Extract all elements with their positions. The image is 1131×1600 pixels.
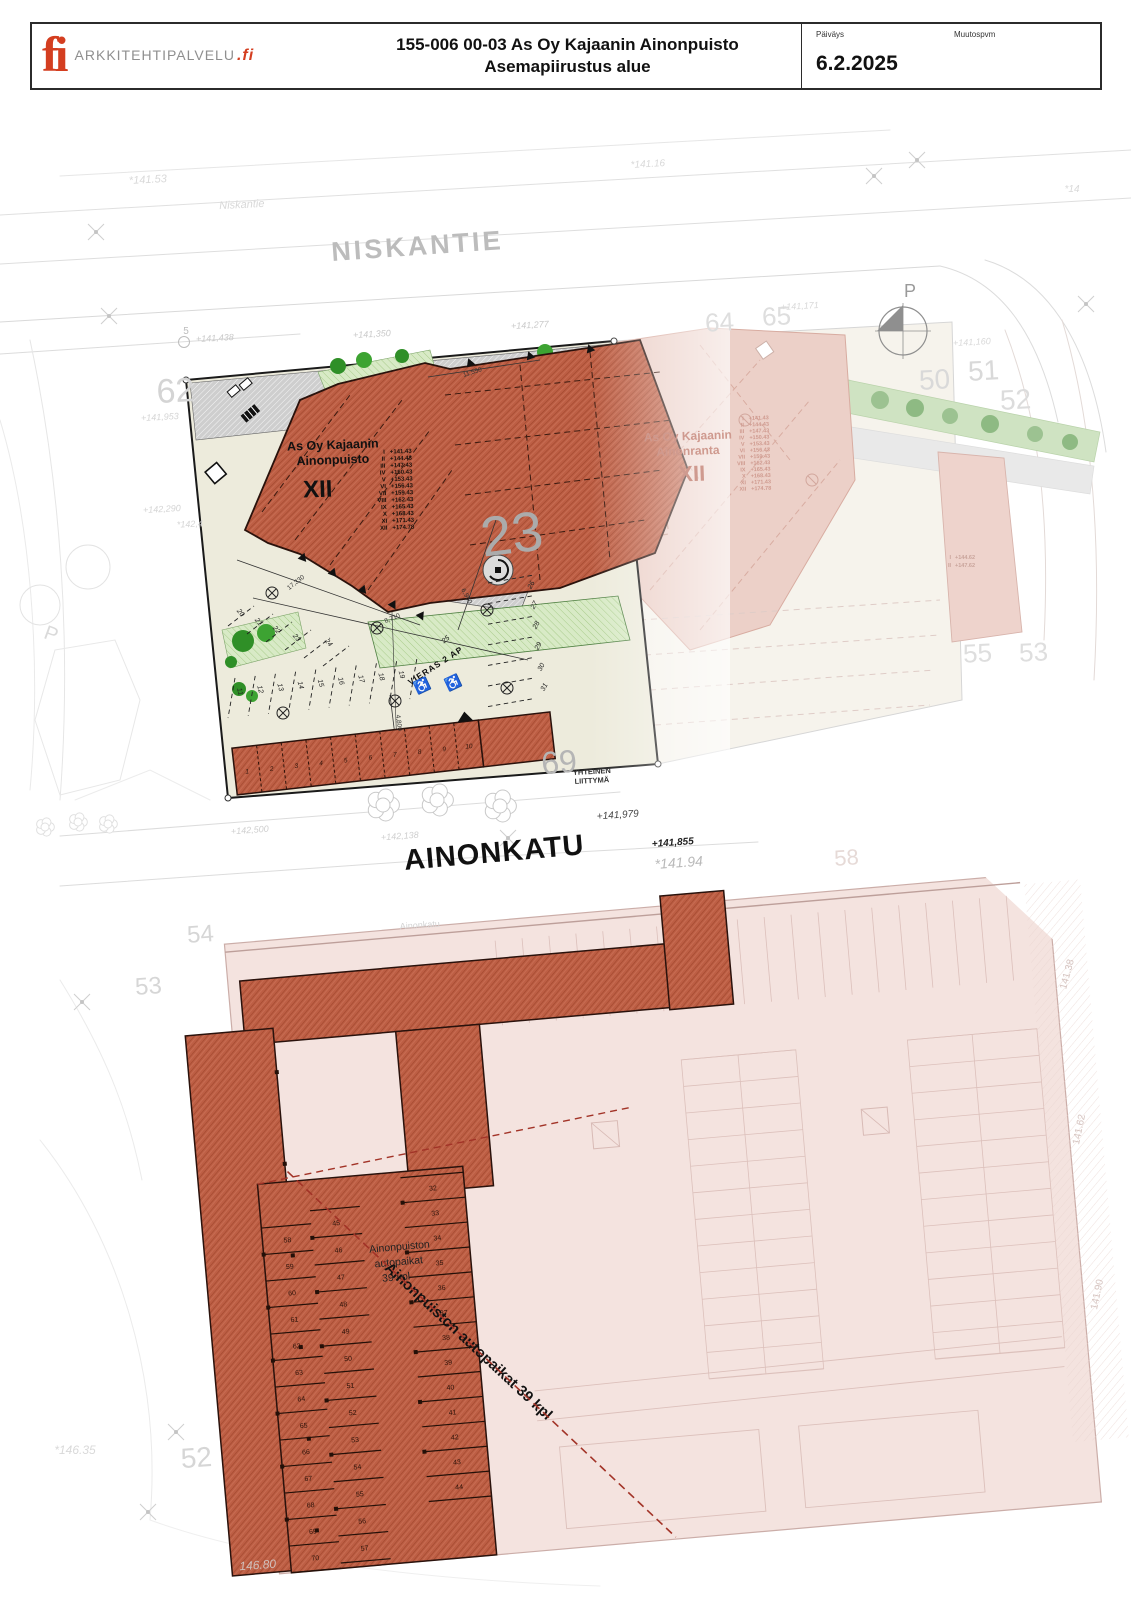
label-e1424: *142,4	[177, 518, 204, 529]
label-e141350: +141,350	[353, 328, 391, 340]
garage-stall-number: 35	[435, 1260, 443, 1268]
drawing-title: 155-006 00-03 As Oy Kajaanin Ainonpuisto…	[334, 24, 801, 88]
ainonranta-floor-table-level: V	[741, 442, 745, 448]
tree-flower-icon	[368, 789, 399, 821]
garage-stall-number: 67	[304, 1475, 312, 1483]
label-e142500: +142,500	[231, 824, 269, 837]
label-ainonkatu_major: AINONKATU	[403, 829, 586, 877]
garage-stall-number: 48	[339, 1301, 347, 1309]
label-storeys: XII	[303, 476, 333, 504]
company-name-suffix: .fi	[237, 47, 254, 64]
ainonpuisto-floor-table-elev: +162.43	[391, 497, 414, 504]
garage-stall-number: 38	[442, 1335, 450, 1343]
date-value: 6.2.2025	[816, 52, 898, 76]
label-b69: 69	[540, 743, 579, 782]
garage-stall-number: 63	[295, 1369, 303, 1377]
label-name_line2: Ainonranta	[656, 443, 720, 459]
ainonranta-floor-table-level: VIII	[737, 461, 746, 467]
ainonpuisto-floor-table-level: VI	[380, 484, 386, 490]
garage-stall-number: 36	[438, 1285, 446, 1293]
label-e14680: 146.80	[239, 1557, 277, 1574]
ainonranta-floor-table-elev: +174.78	[751, 486, 771, 493]
garage-stall-number: 52	[349, 1410, 357, 1418]
garage-stall-number: 51	[346, 1383, 354, 1391]
garage-stall-number: 68	[307, 1502, 315, 1510]
garage-stall-number: 32	[429, 1185, 437, 1193]
garage-stall-number: 54	[353, 1464, 361, 1472]
ainonranta-floor-table-level: III	[739, 429, 744, 435]
label-e14153: *141.53	[129, 173, 168, 187]
garage-stall-number: 60	[288, 1290, 296, 1298]
garage-stall-number: 43	[453, 1459, 461, 1467]
company-logo: fi ARKKITEHTIPALVELU.fi	[32, 24, 334, 88]
side-building-floor-table-level: II	[948, 563, 952, 569]
garage-stall-number: 42	[451, 1434, 459, 1442]
company-name-text: ARKKITEHTIPALVELU	[75, 47, 235, 63]
ainonpuisto-floor-table-level: XII	[380, 526, 388, 532]
ainonpuisto-floor-table-elev: +168.43	[392, 511, 415, 518]
ainonranta-floor-table: I+141.43II+144.43III+147.43IV+150.43V+15…	[735, 415, 771, 493]
garage-stall-number: 70	[311, 1555, 319, 1563]
label-niskantie_major: NISKANTIE	[330, 225, 504, 267]
label-e142290: +142,290	[143, 503, 181, 515]
label-yhteinen_line2: LIITTYMÄ	[574, 775, 610, 786]
ainonpuisto-floor-table-elev: +165.43	[392, 504, 415, 511]
label-b58f: 58	[833, 844, 859, 871]
ainonranta-floor-table-level: VI	[740, 448, 746, 454]
label-e14194: *141.94	[654, 853, 703, 872]
garage-stall-number: 44	[455, 1484, 463, 1492]
garage-stall-number: 65	[300, 1422, 308, 1430]
ainonpuisto-floor-table-level: XI	[381, 519, 387, 525]
label-b62: 62	[156, 371, 196, 411]
garage-stall-number: 41	[448, 1409, 456, 1417]
label-niskantie_minor: Niskantie	[219, 198, 265, 212]
label-e141438: +141,438	[196, 332, 234, 344]
date-label: Päiväys	[816, 30, 844, 39]
ainonpuisto-floor-table-elev: +150.43	[390, 469, 413, 476]
drawing-title-line2: Asemapiirustus alue	[334, 56, 801, 78]
company-name: ARKKITEHTIPALVELU.fi	[75, 47, 255, 65]
ainonpuisto-floor-table-level: VII	[379, 491, 387, 497]
label-b51: 51	[967, 354, 1000, 387]
label-b54: 54	[186, 920, 215, 949]
label-e14: *14	[1064, 184, 1079, 195]
ainonpuisto-floor-table-level: III	[380, 464, 386, 470]
label-b5: 5	[183, 326, 189, 337]
label-b52r: 52	[999, 383, 1032, 416]
ainonranta-floor-table-level: VII	[738, 455, 745, 461]
garage-stall-number: 33	[431, 1210, 439, 1218]
label-b53l: 53	[134, 972, 163, 1001]
ainonpuisto-floor-table-level: IV	[380, 470, 386, 476]
garage-stall-number: 58	[283, 1237, 291, 1245]
tree-flower-icon	[100, 815, 118, 833]
title-block: fi ARKKITEHTIPALVELU.fi 155-006 00-03 As…	[30, 22, 1102, 90]
label-e141171: +141,171	[781, 300, 819, 312]
label-e14116: *141.16	[630, 158, 665, 171]
garage-stall-number: 47	[337, 1274, 345, 1282]
label-neighbor_p: P	[41, 622, 61, 647]
tree-flower-icon	[485, 790, 516, 822]
ainonpuisto-floor-table-elev: +159.43	[391, 490, 414, 497]
tree-flower-icon	[37, 818, 55, 836]
garage-stall-number: 61	[290, 1316, 298, 1324]
ainonpuisto-floor-table-elev: +153.43	[391, 476, 414, 483]
label-north_label: P	[904, 281, 916, 301]
ainonranta-floor-table-level: XI	[741, 480, 747, 486]
label-e14635: *146.35	[54, 1443, 96, 1457]
label-e141979: +141,979	[596, 809, 639, 823]
tree-flower-icon	[422, 784, 453, 816]
ainonpuisto-floor-table-elev: +171.43	[392, 518, 415, 525]
label-storeys: XII	[678, 461, 706, 487]
garage-stall-number: 49	[342, 1328, 350, 1336]
label-e142138: +142,138	[381, 830, 419, 843]
ainonpuisto-floor-table-level: V	[382, 477, 386, 483]
ainonpuisto-floor-table: I+141.43II+144.43III+147.43IV+150.43V+15…	[376, 449, 415, 532]
ainonpuisto-floor-table-level: IX	[381, 505, 387, 511]
ainonranta-floor-table-level: IX	[740, 467, 746, 473]
garage-stall-number: 34	[433, 1235, 441, 1243]
ainonranta-floor-table-level: XII	[739, 487, 746, 493]
garage-stall-number: 59	[286, 1264, 294, 1272]
garage-stall-number: 40	[446, 1384, 454, 1392]
garage-stall-number: 46	[334, 1247, 342, 1255]
garage-stall-number: 56	[358, 1518, 366, 1526]
carport-stall-number: 10	[465, 743, 473, 751]
ainonpuisto-floor-table-elev: +174.78	[392, 525, 415, 532]
ainonpuisto-floor-table-elev: +156.43	[391, 483, 414, 490]
side-building-floor-table-elev: +147.62	[955, 563, 975, 569]
ainonpuisto-floor-table-level: VIII	[377, 498, 387, 504]
logo-fi-icon: fi	[42, 29, 65, 79]
label-b53r: 53	[1018, 636, 1048, 667]
label-b52b: 52	[180, 1441, 213, 1474]
label-e141953: +141,953	[141, 411, 179, 423]
garage-stall-number: 39	[444, 1359, 452, 1367]
ainonpuisto-floor-table-elev: +147.43	[390, 463, 413, 470]
label-b23: 23	[477, 499, 547, 569]
label-e141855: +141,855	[651, 836, 694, 850]
ainonpuisto-floor-table-level: II	[382, 457, 386, 463]
revision-label: Muutospvm	[954, 30, 995, 39]
label-b55: 55	[962, 637, 992, 668]
ainonranta-floor-table-level: IV	[739, 435, 745, 441]
side-building-floor-table-elev: +144.62	[955, 555, 975, 561]
ainonpuisto-floor-table-elev: +144.43	[390, 456, 413, 463]
garage-stall-number: 57	[360, 1545, 368, 1553]
garage-stall-number: 66	[302, 1449, 310, 1457]
ainonpuisto-floor-table-elev: +141.43	[390, 449, 413, 456]
garage-stall-number: 53	[351, 1437, 359, 1445]
drawing-title-line1: 155-006 00-03 As Oy Kajaanin Ainonpuisto	[334, 34, 801, 56]
label-b50: 50	[918, 363, 951, 396]
drawing-sheet: fi ARKKITEHTIPALVELU.fi 155-006 00-03 As…	[0, 0, 1131, 1600]
garage-stall-number: 64	[297, 1396, 305, 1404]
label-b64: 64	[704, 306, 734, 337]
label-e141160: +141,160	[953, 336, 991, 348]
site-plan-canvas: 3233343536373839404142434445464748495051…	[0, 0, 1131, 1600]
tree-flower-icon	[70, 813, 88, 831]
ainonranta-floor-table-level: X	[742, 474, 746, 480]
garage-stall-number: 55	[356, 1491, 364, 1499]
title-block-fields: Päiväys Muutospvm 6.2.2025	[801, 24, 1100, 88]
label-name_line2: Ainonpuisto	[296, 452, 370, 469]
label-e141277: +141,277	[511, 319, 550, 331]
garage-stall-number: 50	[344, 1356, 352, 1364]
ainonpuisto-floor-table-level: X	[383, 512, 387, 518]
